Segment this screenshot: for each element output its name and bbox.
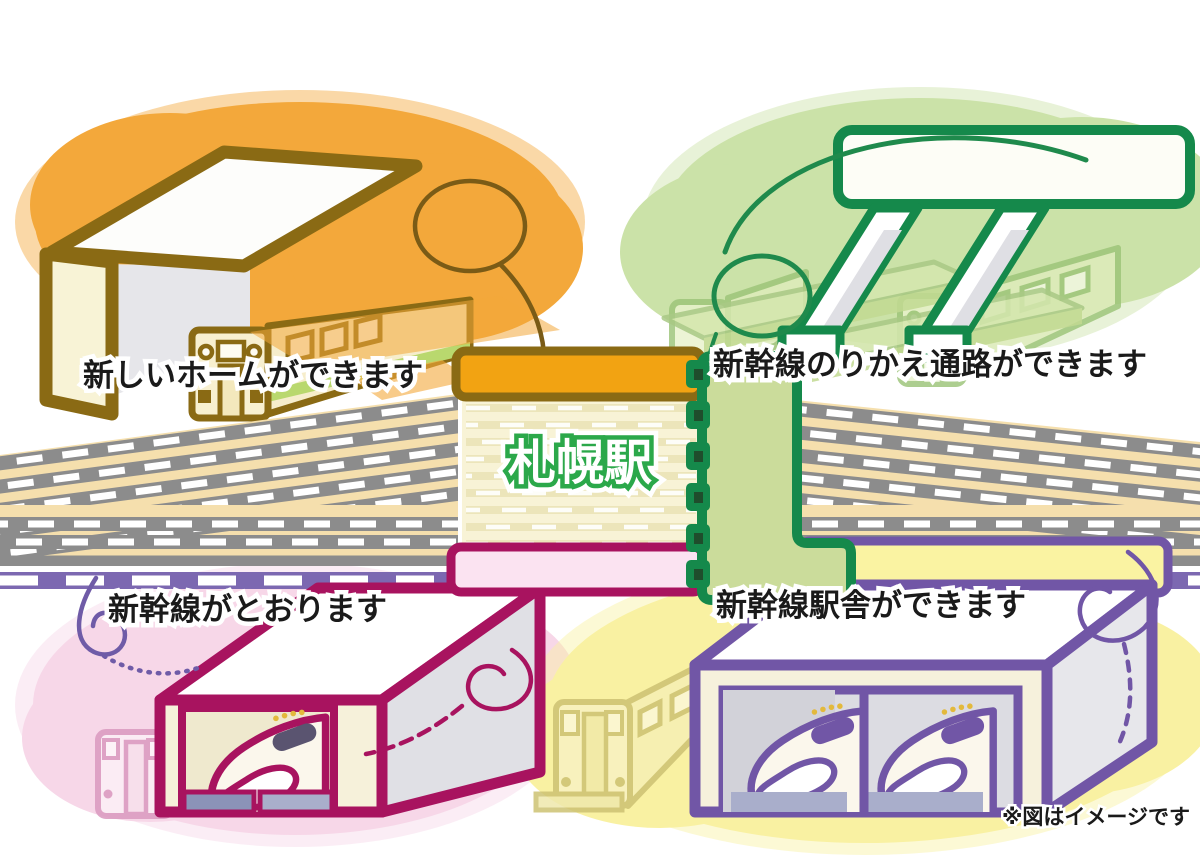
image-disclaimer-note: ※図はイメージです ※図はイメージです [1002, 806, 1190, 828]
label-fill-layer: ※図はイメージです [1002, 805, 1190, 829]
illustration-canvas [0, 0, 1200, 857]
shinkansen-line-highlight-bar [451, 547, 703, 592]
label-fill-layer: 新幹線駅舎ができます [716, 588, 1026, 624]
new-platform-highlight-bar [456, 351, 702, 397]
callout-shinkansen-through-label: 新幹線がとおります 新幹線がとおります [108, 594, 387, 627]
label-fill-layer: 新しいホームができます [83, 358, 423, 394]
label-fill-layer: 札幌駅 [508, 435, 652, 491]
station-development-illustration: 新しいホームができます 新しいホームができます 新幹線のりかえ通路ができます 新… [0, 0, 1200, 857]
callout-transfer-passage-label: 新幹線のりかえ通路ができます 新幹線のりかえ通路ができます [713, 349, 1147, 382]
callout-new-platform-label: 新しいホームができます 新しいホームができます [83, 360, 423, 393]
label-fill-layer: 新幹線のりかえ通路ができます [713, 347, 1147, 383]
callout-station-building-label: 新幹線駅舎ができます 新幹線駅舎ができます [716, 590, 1026, 623]
station-name-label: 札幌駅 札幌駅 札幌駅 [508, 438, 652, 488]
label-fill-layer: 新幹線がとおります [108, 592, 387, 628]
